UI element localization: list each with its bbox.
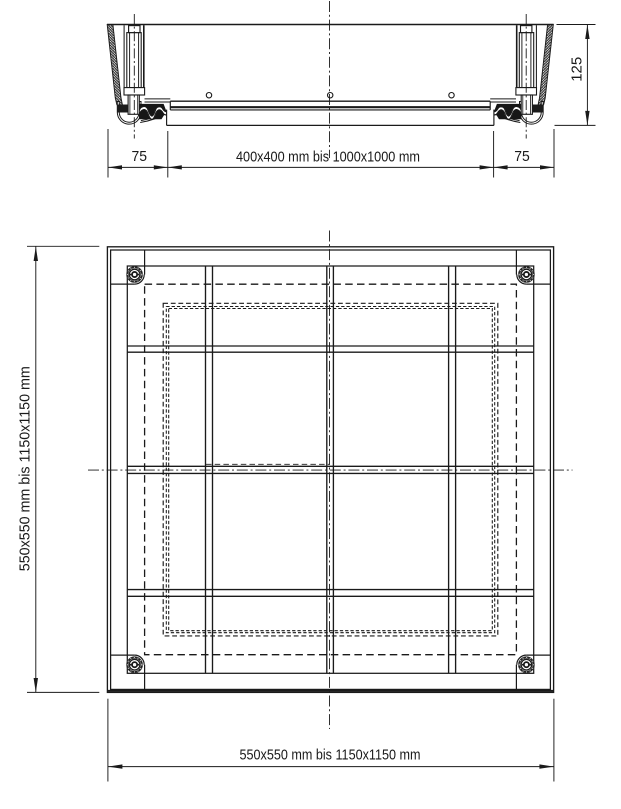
svg-text:550x550 mm bis 1150x1150 mm: 550x550 mm bis 1150x1150 mm — [240, 746, 421, 763]
svg-text:75: 75 — [514, 148, 530, 165]
svg-text:400x400 mm bis 1000x1000 mm: 400x400 mm bis 1000x1000 mm — [236, 148, 420, 165]
svg-text:125: 125 — [568, 57, 585, 82]
svg-text:75: 75 — [132, 148, 148, 165]
svg-text:550x550 mm bis 1150x1150 mm: 550x550 mm bis 1150x1150 mm — [16, 366, 33, 571]
